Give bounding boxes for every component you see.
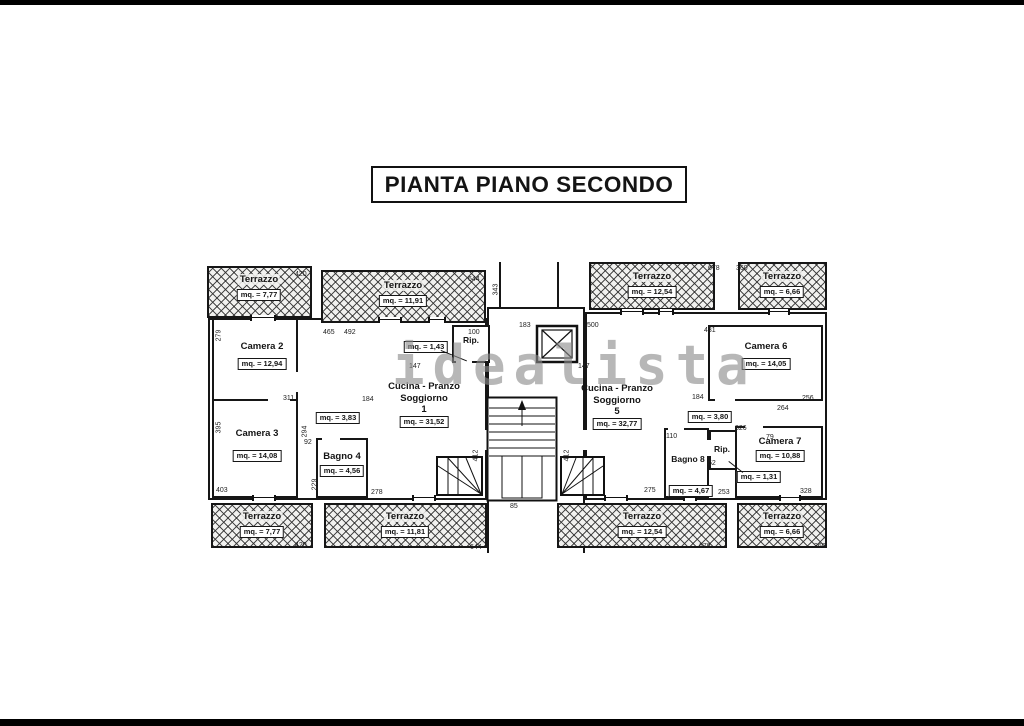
door-gap [296,372,302,392]
room-area: mq. = 32,77 [593,418,642,430]
window-marker [768,309,790,315]
window-marker [252,495,276,501]
window-marker [620,309,644,315]
window-marker [378,317,402,323]
dimension-label: 678 [699,543,711,550]
door-gap [668,426,684,432]
dimension-label: 328 [800,488,812,495]
dimension-label: 360 [736,265,748,272]
room-area: mq. = 14,08 [233,450,282,462]
dimension-label: 492 [344,329,356,336]
dimension-label: 92 [304,439,312,446]
top-border [0,0,1024,5]
dimension-label: 431 [704,327,716,334]
dimension-label: 412 [563,450,570,462]
window-marker [604,495,628,501]
idealista-watermark: idealista [392,334,757,397]
window-marker [250,315,276,321]
door-gap [715,399,735,405]
staircase-icon [560,456,605,496]
window-marker [428,317,446,323]
dimension-label: 184 [362,396,374,403]
bottom-border [0,719,1024,726]
door-gap [583,430,589,450]
dimension-label: 678 [708,265,720,272]
terrace-area: mq. = 12,54 [628,286,677,298]
terrace-label: Terrazzo [621,511,663,522]
room-label: Bagno 8 [671,454,705,464]
terrace-area: mq. = 7,77 [240,526,284,538]
terrace-area: mq. = 6,66 [760,286,804,298]
hallway-area: mq. = 3,80 [688,411,732,423]
terrace-area: mq. = 11,81 [381,526,429,538]
terrace-label: Terrazzo [238,274,280,285]
terrace-label: Terrazzo [384,511,426,522]
dimension-label: 85 [510,503,518,510]
dimension-label: 500 [587,322,599,329]
winder-staircase-right [560,456,605,496]
winder-staircase-left [436,456,483,496]
dimension-label: 360 [814,543,826,550]
dimension-label: 52 [708,460,716,467]
dimension-label: 420 [295,271,307,278]
room-area: mq. = 4,56 [320,465,364,477]
door-gap [745,424,763,430]
dimension-label: 79 [766,434,774,441]
dimension-label: 294 [301,426,308,438]
door-gap [707,440,713,456]
dimension-label: 110 [666,433,677,440]
dimension-label: 278 [371,489,383,496]
room-camera3 [212,399,298,498]
terrace-label: Terrazzo [761,511,803,522]
room-area: mq. = 31,52 [400,416,449,428]
dimension-label: 465 [323,329,335,336]
dimension-label: 644 [470,544,482,551]
window-marker [658,309,674,315]
terrace-area: mq. = 11,91 [379,295,427,307]
dimension-label: 279 [215,330,222,342]
dimension-label: 412 [472,450,479,462]
room-number: 1 [421,404,426,415]
dimension-label: 253 [718,489,730,496]
dimension-label: 256 [802,395,814,402]
dimension-label: 264 [777,405,789,412]
room-label: Bagno 4 [323,451,360,462]
room-number: 5 [614,406,619,417]
light-well-recess [499,262,559,307]
dimension-label: 395 [215,422,222,434]
dimension-label: 229 [311,479,318,491]
staircase-icon [486,396,558,502]
dimension-label: 275 [644,487,656,494]
terrace-area: mq. = 12,54 [618,526,667,538]
room-label: Rip. [714,444,730,454]
staircase-icon [436,456,483,496]
terrace-label: Terrazzo [382,280,424,291]
page-title: PIANTA PIANO SECONDO [371,166,687,203]
room-area: mq. = 12,94 [238,358,287,370]
dimension-label: 644 [468,276,480,283]
terrace-label: Terrazzo [761,271,803,282]
dimension-label: 311 [283,395,294,402]
terrace-area: mq. = 7,77 [237,289,281,301]
room-label: Camera 3 [236,428,279,439]
window-marker [779,495,801,501]
window-marker [412,495,436,501]
door-gap [322,436,340,442]
dimension-label: 183 [519,322,531,329]
main-staircase [486,396,558,502]
room-area: mq. = 4,67 [669,485,713,497]
terrace-label: Terrazzo [241,511,283,522]
room-label: Camera 2 [241,341,284,352]
dimension-label: 343 [492,284,499,296]
dimension-label: 403 [216,487,228,494]
terrace-area: mq. = 6,66 [760,526,804,538]
terrace-label: Terrazzo [631,271,673,282]
room-area: mq. = 10,88 [756,450,805,462]
dimension-label: 326 [735,425,747,432]
dimension-label: 420 [295,542,307,549]
hallway-area: mq. = 3,83 [316,412,360,424]
room-area: mq. = 1,31 [737,471,781,483]
